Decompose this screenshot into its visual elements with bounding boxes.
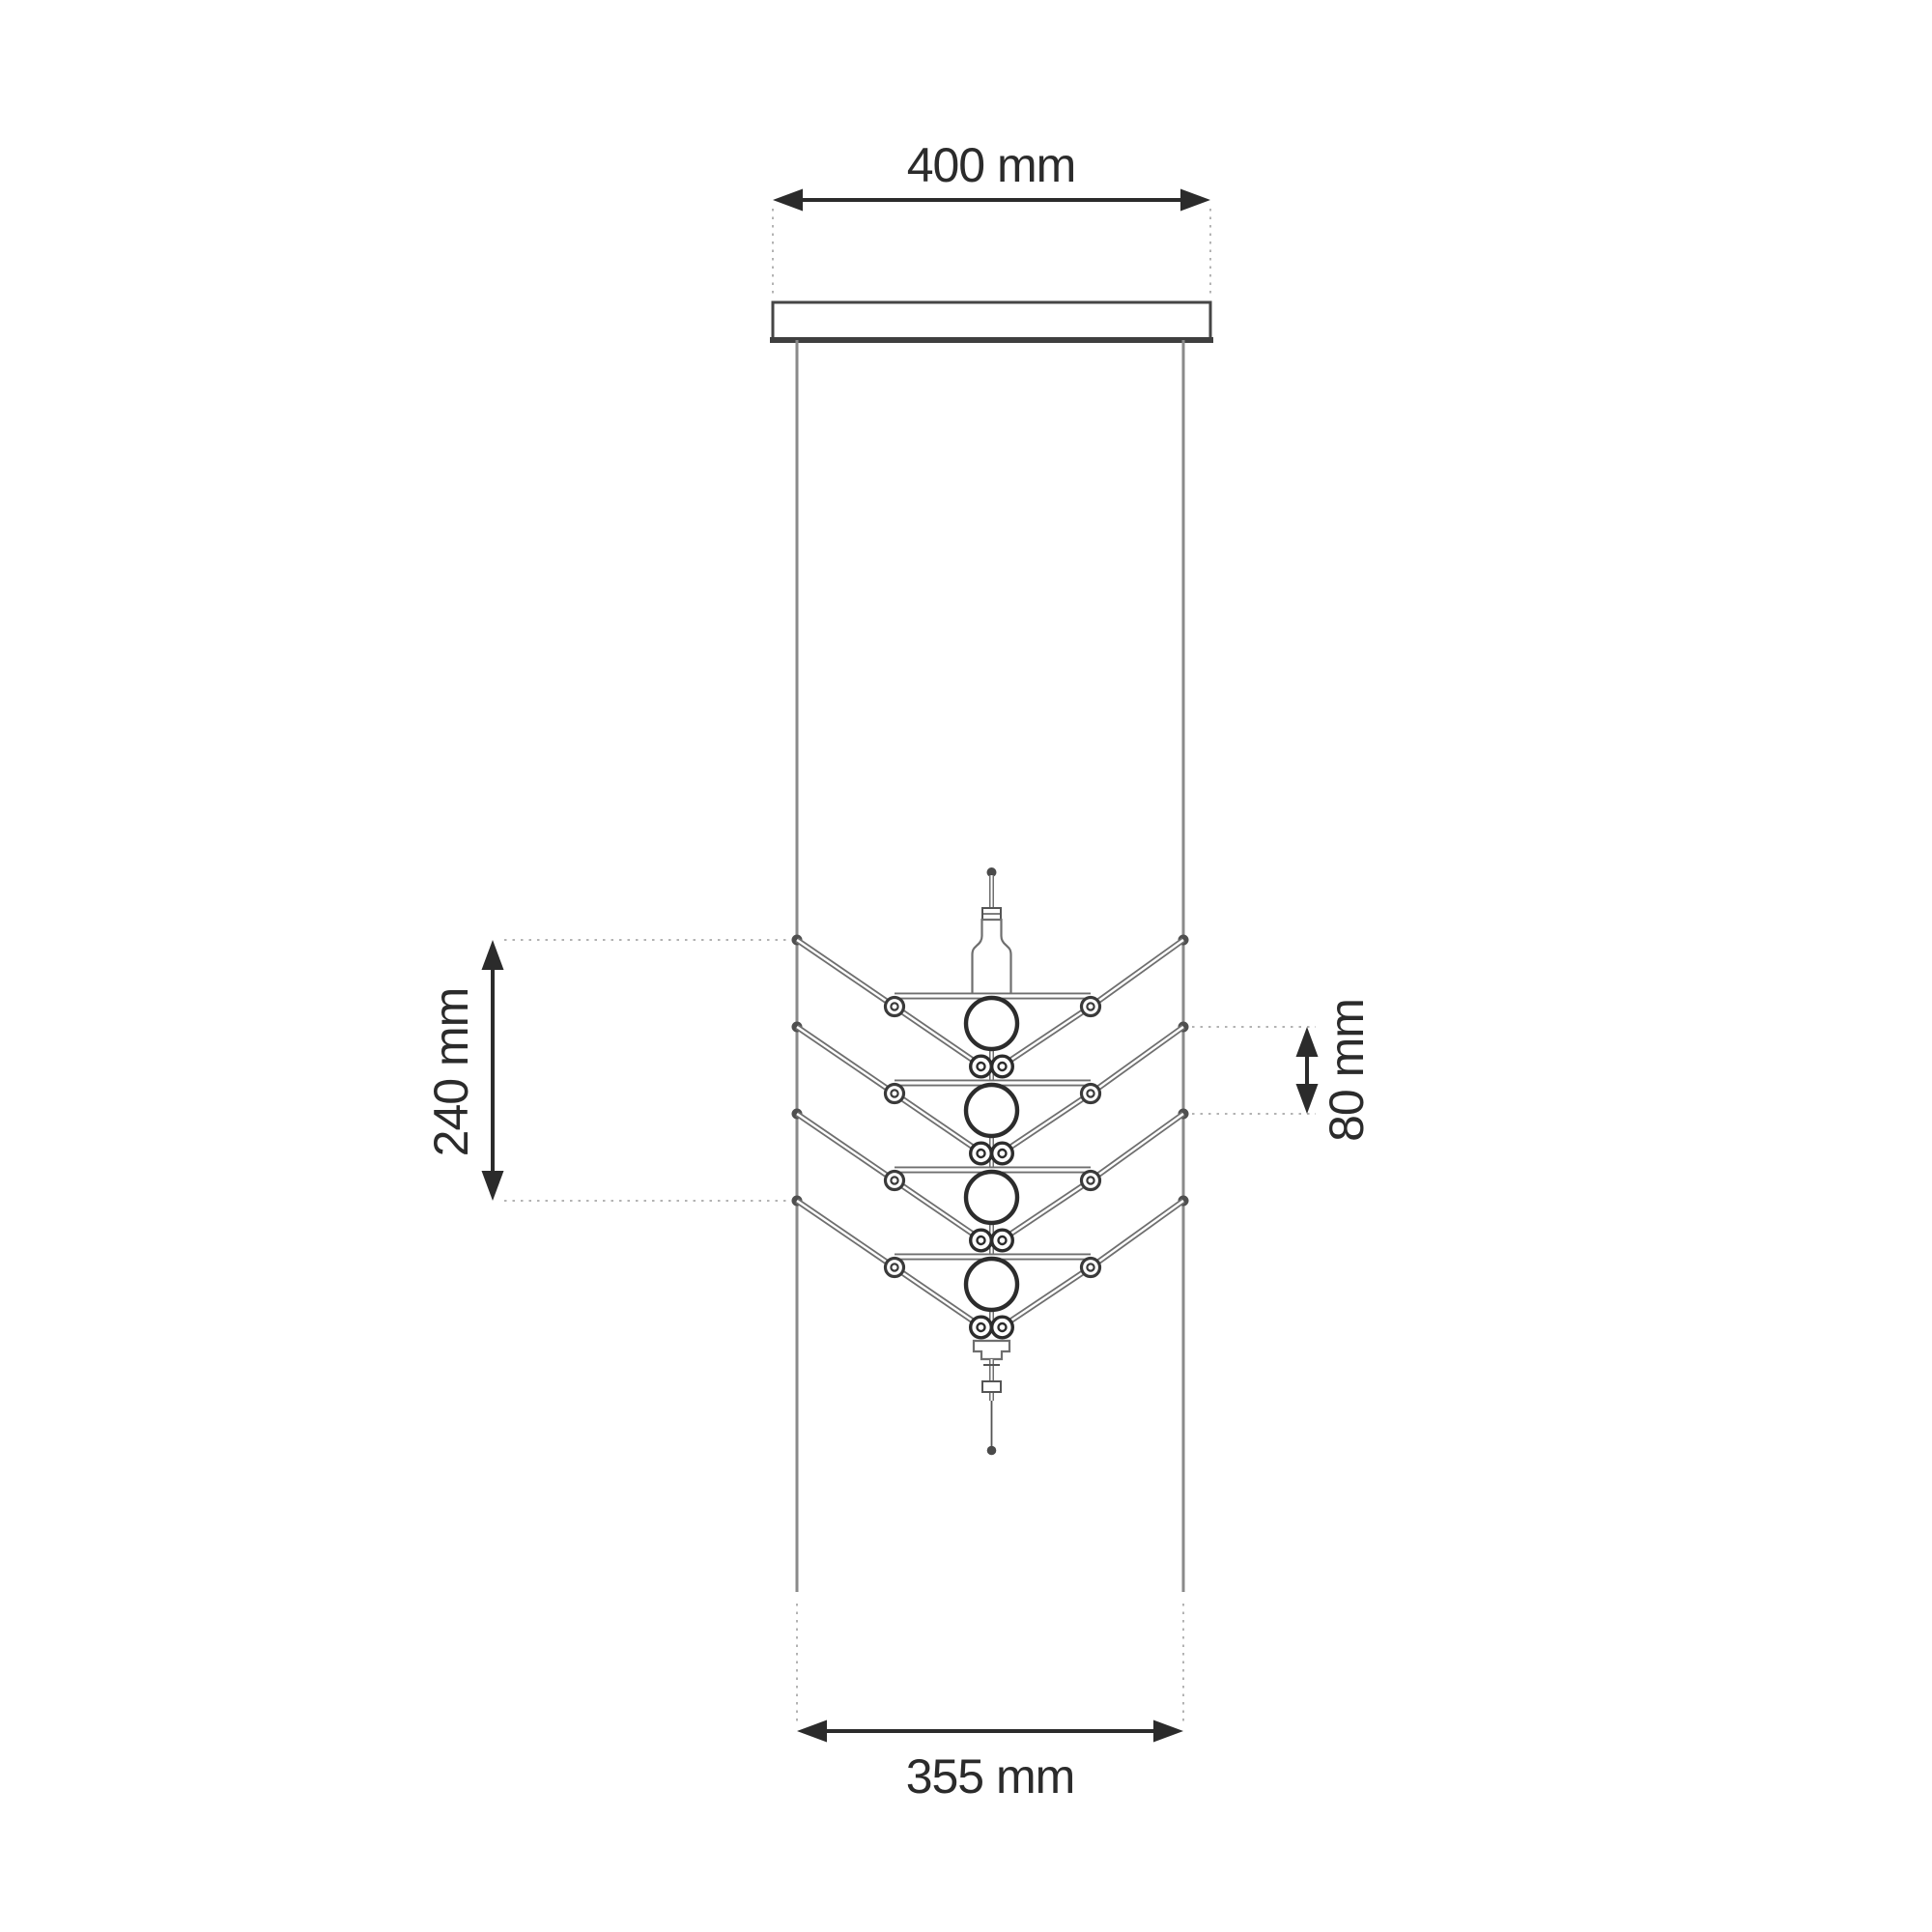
- stack-height-label: 240 mm: [424, 988, 478, 1157]
- bottom-bracket: [974, 1341, 1009, 1359]
- dimension-annotations: 400 mm 355 mm 240 mm 80 mm: [424, 138, 1374, 1804]
- dimension-shafts: [493, 200, 1307, 1731]
- arrowhead-left-icon: [797, 1720, 827, 1743]
- arrowhead-up-icon: [482, 940, 504, 970]
- arrowhead-right-icon: [1153, 1720, 1183, 1743]
- drawing-canvas: 400 mm 355 mm 240 mm 80 mm: [0, 0, 1932, 1932]
- arrowhead-left-icon: [773, 189, 803, 212]
- guide-lines: [504, 209, 1316, 1725]
- arrowhead-right-icon: [1180, 189, 1210, 212]
- arrowhead-down-icon: [482, 1171, 504, 1201]
- ceiling-canopy: [773, 302, 1210, 340]
- socket-bottle: [973, 920, 1011, 998]
- shade-width-label: 355 mm: [906, 1749, 1075, 1804]
- dimension-arrowheads: [482, 189, 1319, 1743]
- pendant-light-dimension-drawing: 400 mm 355 mm 240 mm 80 mm: [0, 0, 1932, 1932]
- chandelier-armature: [792, 867, 1189, 1455]
- arrowhead-up-icon: [1296, 1027, 1319, 1057]
- canopy-width-label: 400 mm: [907, 138, 1076, 192]
- stem-coupler: [982, 1381, 1001, 1392]
- arrowhead-down-icon: [1296, 1084, 1319, 1114]
- tier-spacing-label: 80 mm: [1320, 999, 1374, 1142]
- drop-end-dot: [987, 1446, 997, 1456]
